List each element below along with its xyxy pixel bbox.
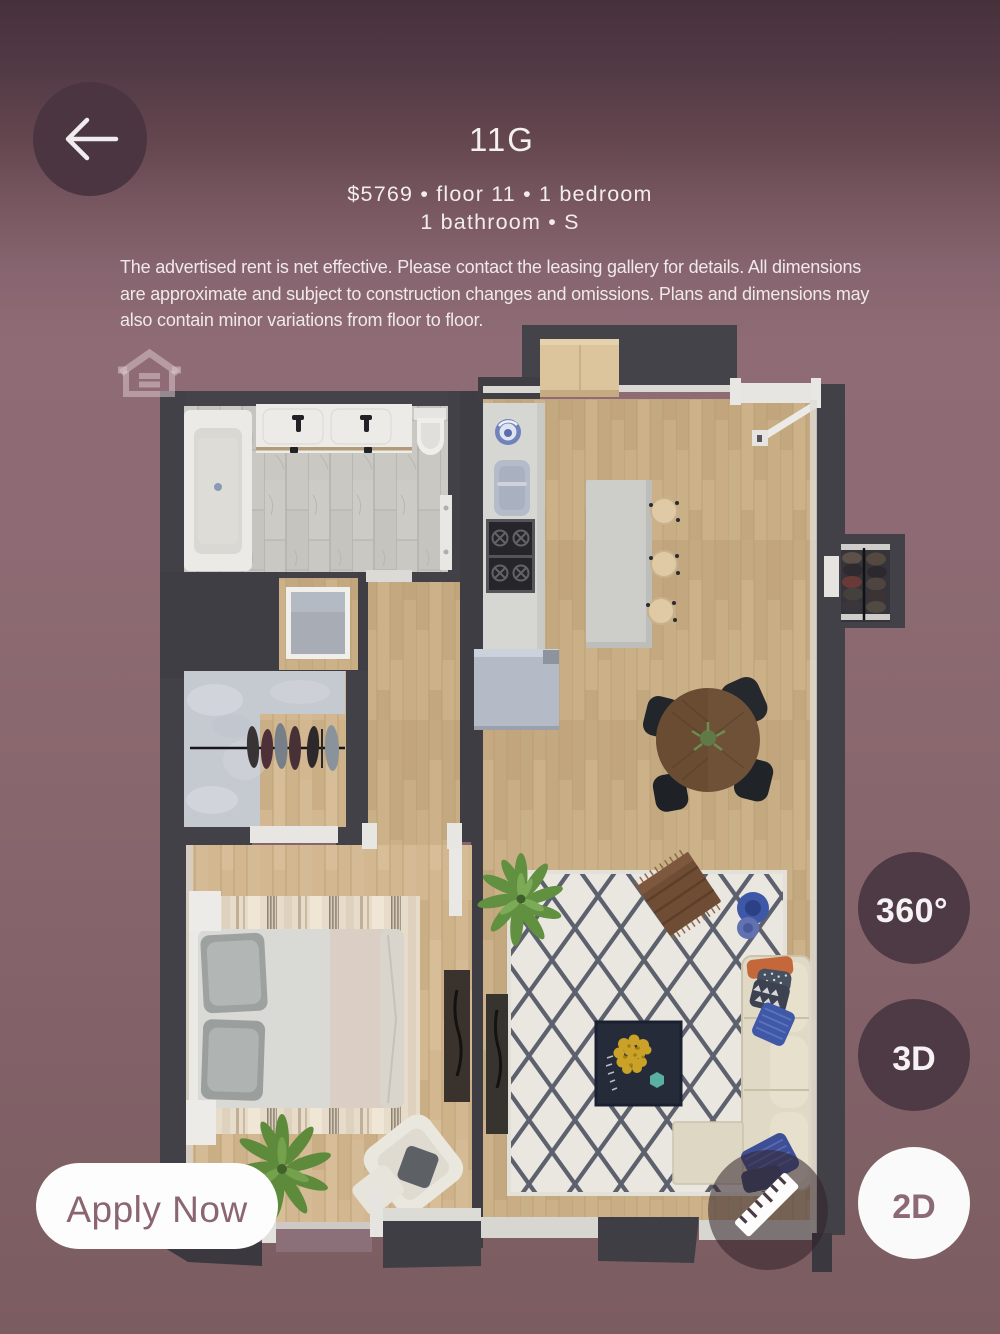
svg-text:11G: 11G xyxy=(469,121,535,158)
svg-text:$5769 • floor 11 • 1 bedroom: $5769 • floor 11 • 1 bedroom xyxy=(347,182,652,206)
svg-text:also contain minor variations: also contain minor variations from floor… xyxy=(120,310,483,330)
svg-text:360°: 360° xyxy=(876,892,948,930)
svg-text:3D: 3D xyxy=(892,1040,935,1078)
svg-text:1 bathroom • S: 1 bathroom • S xyxy=(420,210,579,234)
svg-text:2D: 2D xyxy=(892,1188,935,1226)
svg-text:are approximate and subject to: are approximate and subject to construct… xyxy=(120,284,869,304)
svg-text:The advertised rent is net eff: The advertised rent is net effective. Pl… xyxy=(120,257,861,277)
svg-text:Apply Now: Apply Now xyxy=(66,1189,247,1230)
